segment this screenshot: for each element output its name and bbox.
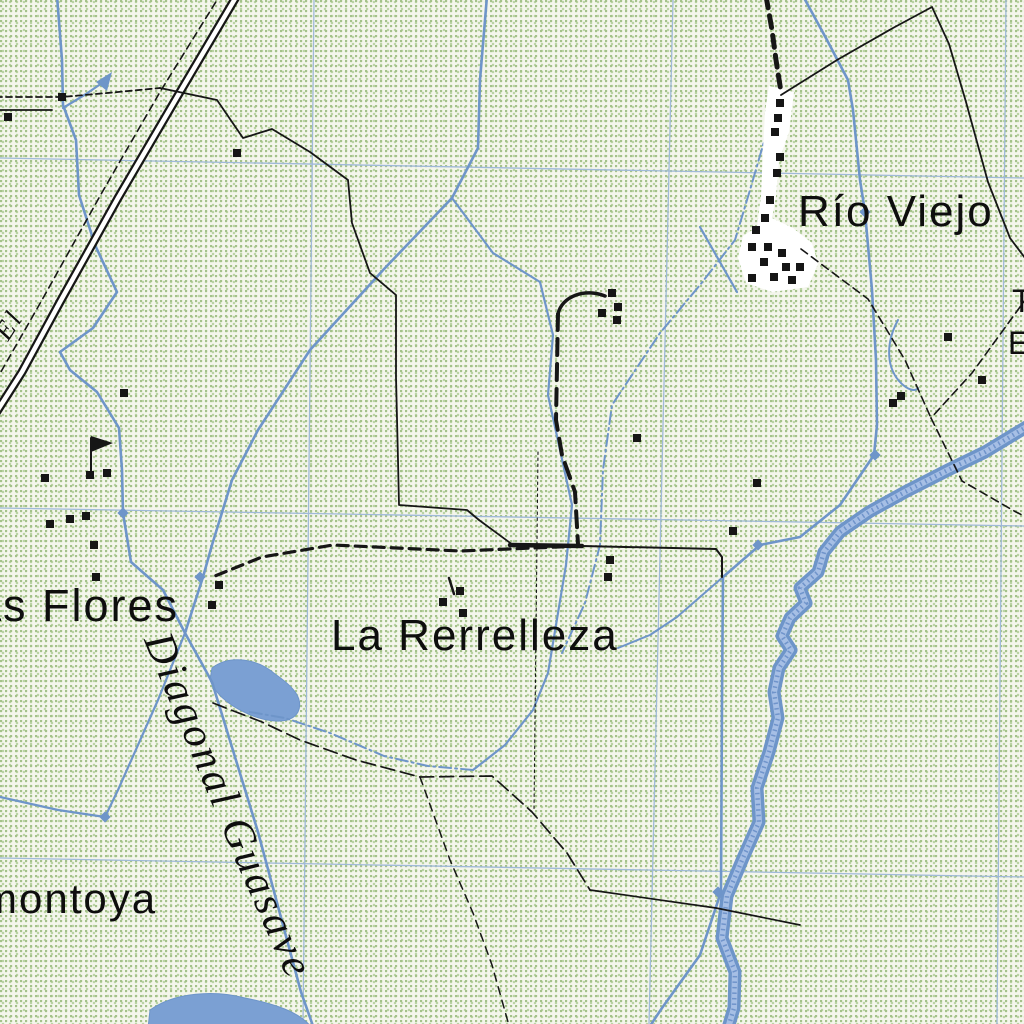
dirt-road bbox=[582, 546, 722, 577]
building-marker bbox=[456, 587, 464, 595]
trail bbox=[801, 249, 931, 418]
road-hook bbox=[558, 293, 605, 314]
building-marker bbox=[778, 249, 786, 257]
building-marker bbox=[776, 99, 784, 107]
topo-map-canvas[interactable]: Río Viejo La Rerrelleza as Flores montoy… bbox=[0, 0, 1024, 1024]
dirt-road bbox=[160, 88, 513, 545]
building-marker bbox=[773, 169, 781, 177]
building-marker bbox=[752, 226, 760, 234]
building-marker bbox=[776, 153, 784, 161]
canal bbox=[185, 0, 487, 633]
building-marker bbox=[729, 527, 737, 535]
building-marker bbox=[58, 93, 66, 101]
canal-spur bbox=[618, 577, 723, 648]
building-marker bbox=[233, 149, 241, 157]
building-marker bbox=[608, 289, 616, 297]
building-marker bbox=[944, 333, 952, 341]
building-marker bbox=[208, 601, 216, 609]
building-marker bbox=[439, 598, 447, 606]
building-marker bbox=[66, 515, 74, 523]
place-label-la-rerrelleza: La Rerrelleza bbox=[331, 611, 619, 660]
building-marker bbox=[897, 392, 905, 400]
trail bbox=[590, 890, 800, 925]
building-marker bbox=[782, 263, 790, 271]
building-marker bbox=[103, 469, 111, 477]
canal-segment bbox=[700, 227, 737, 292]
building-marker bbox=[606, 556, 614, 564]
road-under-construction bbox=[556, 314, 578, 544]
building-marker bbox=[748, 274, 756, 282]
map-graphics: Río Viejo La Rerrelleza as Flores montoy… bbox=[0, 0, 1024, 1024]
building-marker bbox=[788, 276, 796, 284]
edge-clipped-label-e: E bbox=[1008, 325, 1024, 361]
building-marker bbox=[46, 520, 54, 528]
pond bbox=[148, 994, 312, 1024]
water-layer bbox=[0, 0, 1024, 1024]
building-marker bbox=[771, 128, 779, 136]
building-marker bbox=[774, 114, 782, 122]
canal-branch bbox=[452, 198, 540, 282]
river bbox=[722, 426, 1024, 1024]
edge-clipped-label-t: T bbox=[1012, 283, 1024, 319]
building-marker bbox=[889, 399, 897, 407]
building-marker bbox=[766, 196, 774, 204]
place-label-las-flores: as Flores bbox=[0, 580, 179, 631]
grid-line-vertical bbox=[997, 0, 1006, 1024]
building-marker bbox=[764, 243, 772, 251]
building-marker bbox=[598, 309, 606, 317]
building-marker bbox=[796, 263, 804, 271]
label-layer: Río Viejo La Rerrelleza as Flores montoy… bbox=[0, 187, 1024, 986]
building-marker bbox=[613, 316, 621, 324]
building-marker bbox=[82, 512, 90, 520]
building-marker bbox=[633, 434, 641, 442]
building-marker bbox=[90, 541, 98, 549]
building-marker bbox=[770, 273, 778, 281]
building-marker bbox=[753, 479, 761, 487]
road-under-construction bbox=[215, 545, 582, 576]
building-marker bbox=[4, 113, 12, 121]
intermittent-stream bbox=[562, 128, 768, 653]
canal-node-icon bbox=[99, 811, 110, 822]
flag-icon bbox=[91, 436, 113, 472]
building-marker bbox=[41, 474, 49, 482]
flag-pennant bbox=[91, 436, 113, 452]
building-marker bbox=[748, 243, 756, 251]
trail-tick bbox=[449, 578, 454, 594]
highway-casing bbox=[0, 0, 239, 416]
place-label-rio-viejo: Río Viejo bbox=[798, 187, 994, 236]
building-marker bbox=[120, 389, 128, 397]
grid-line-horizontal bbox=[0, 158, 1024, 178]
building-marker bbox=[761, 214, 769, 222]
building-marker bbox=[978, 376, 986, 384]
place-label-montoya: montoya bbox=[0, 875, 157, 922]
canal-arrowhead-icon bbox=[96, 72, 112, 91]
dirt-road bbox=[0, 88, 160, 97]
road-label-el: El bbox=[0, 304, 29, 346]
canal-node-icon bbox=[117, 507, 128, 518]
building-marker bbox=[760, 258, 768, 266]
building-marker bbox=[86, 471, 94, 479]
building-marker bbox=[215, 581, 223, 589]
building-marker bbox=[614, 303, 622, 311]
building-marker bbox=[604, 573, 612, 581]
road-under-construction bbox=[766, 0, 781, 92]
trail bbox=[420, 777, 508, 1022]
trail-along-highway bbox=[0, 0, 222, 384]
